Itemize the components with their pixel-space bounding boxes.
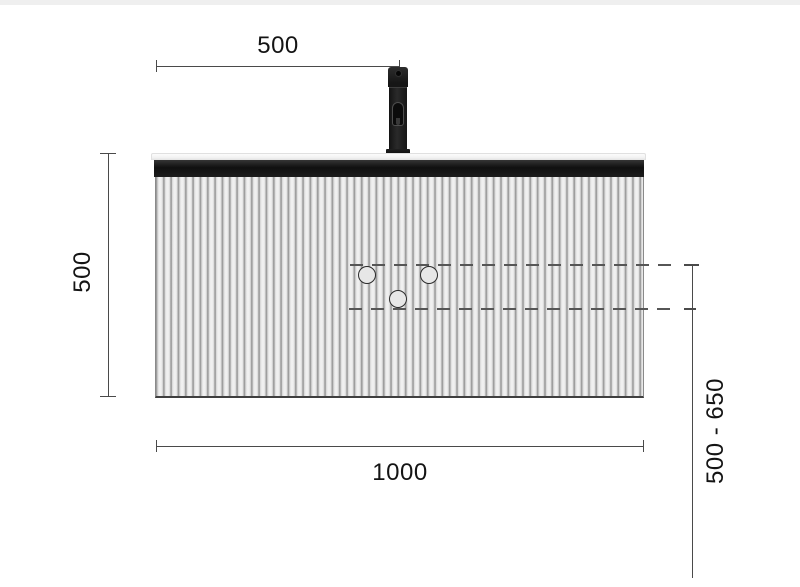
dimension-label-cabinet-height: 500 <box>69 212 97 332</box>
valve-hole-circle-3 <box>389 290 407 308</box>
dimension-tick <box>100 153 116 154</box>
top-border-strip <box>0 0 800 5</box>
reference-dashed-line-lower <box>349 308 678 310</box>
dimension-tick <box>684 264 699 266</box>
sink-front-recess <box>154 160 644 177</box>
valve-hole-circle-1 <box>358 266 376 284</box>
dimension-label-cabinet-width: 1000 <box>156 459 644 487</box>
dimension-tick <box>100 396 116 397</box>
dimension-line-faucet-offset <box>156 66 400 67</box>
dimension-line-mounting-height <box>692 264 693 578</box>
dimension-tick <box>684 308 696 310</box>
dimension-line-cabinet-width <box>156 446 644 447</box>
faucet-cap <box>388 67 408 87</box>
reference-dashed-line-upper <box>350 264 678 266</box>
countertop <box>151 153 646 160</box>
dimension-tick <box>156 60 157 72</box>
dimension-tick <box>156 440 157 452</box>
valve-hole-circle-2 <box>420 266 438 284</box>
dimension-tick <box>643 440 644 452</box>
dimension-line-cabinet-height <box>108 153 109 397</box>
vanity-dimension-diagram: 500 500 1000 500 - 650 <box>0 0 800 587</box>
fluted-front-panel <box>155 177 644 398</box>
dimension-label-mounting-height: 500 - 650 <box>702 361 730 501</box>
faucet-spout-tip <box>396 118 400 125</box>
faucet-cap-dot <box>396 71 401 76</box>
dimension-label-faucet-offset: 500 <box>156 32 400 60</box>
